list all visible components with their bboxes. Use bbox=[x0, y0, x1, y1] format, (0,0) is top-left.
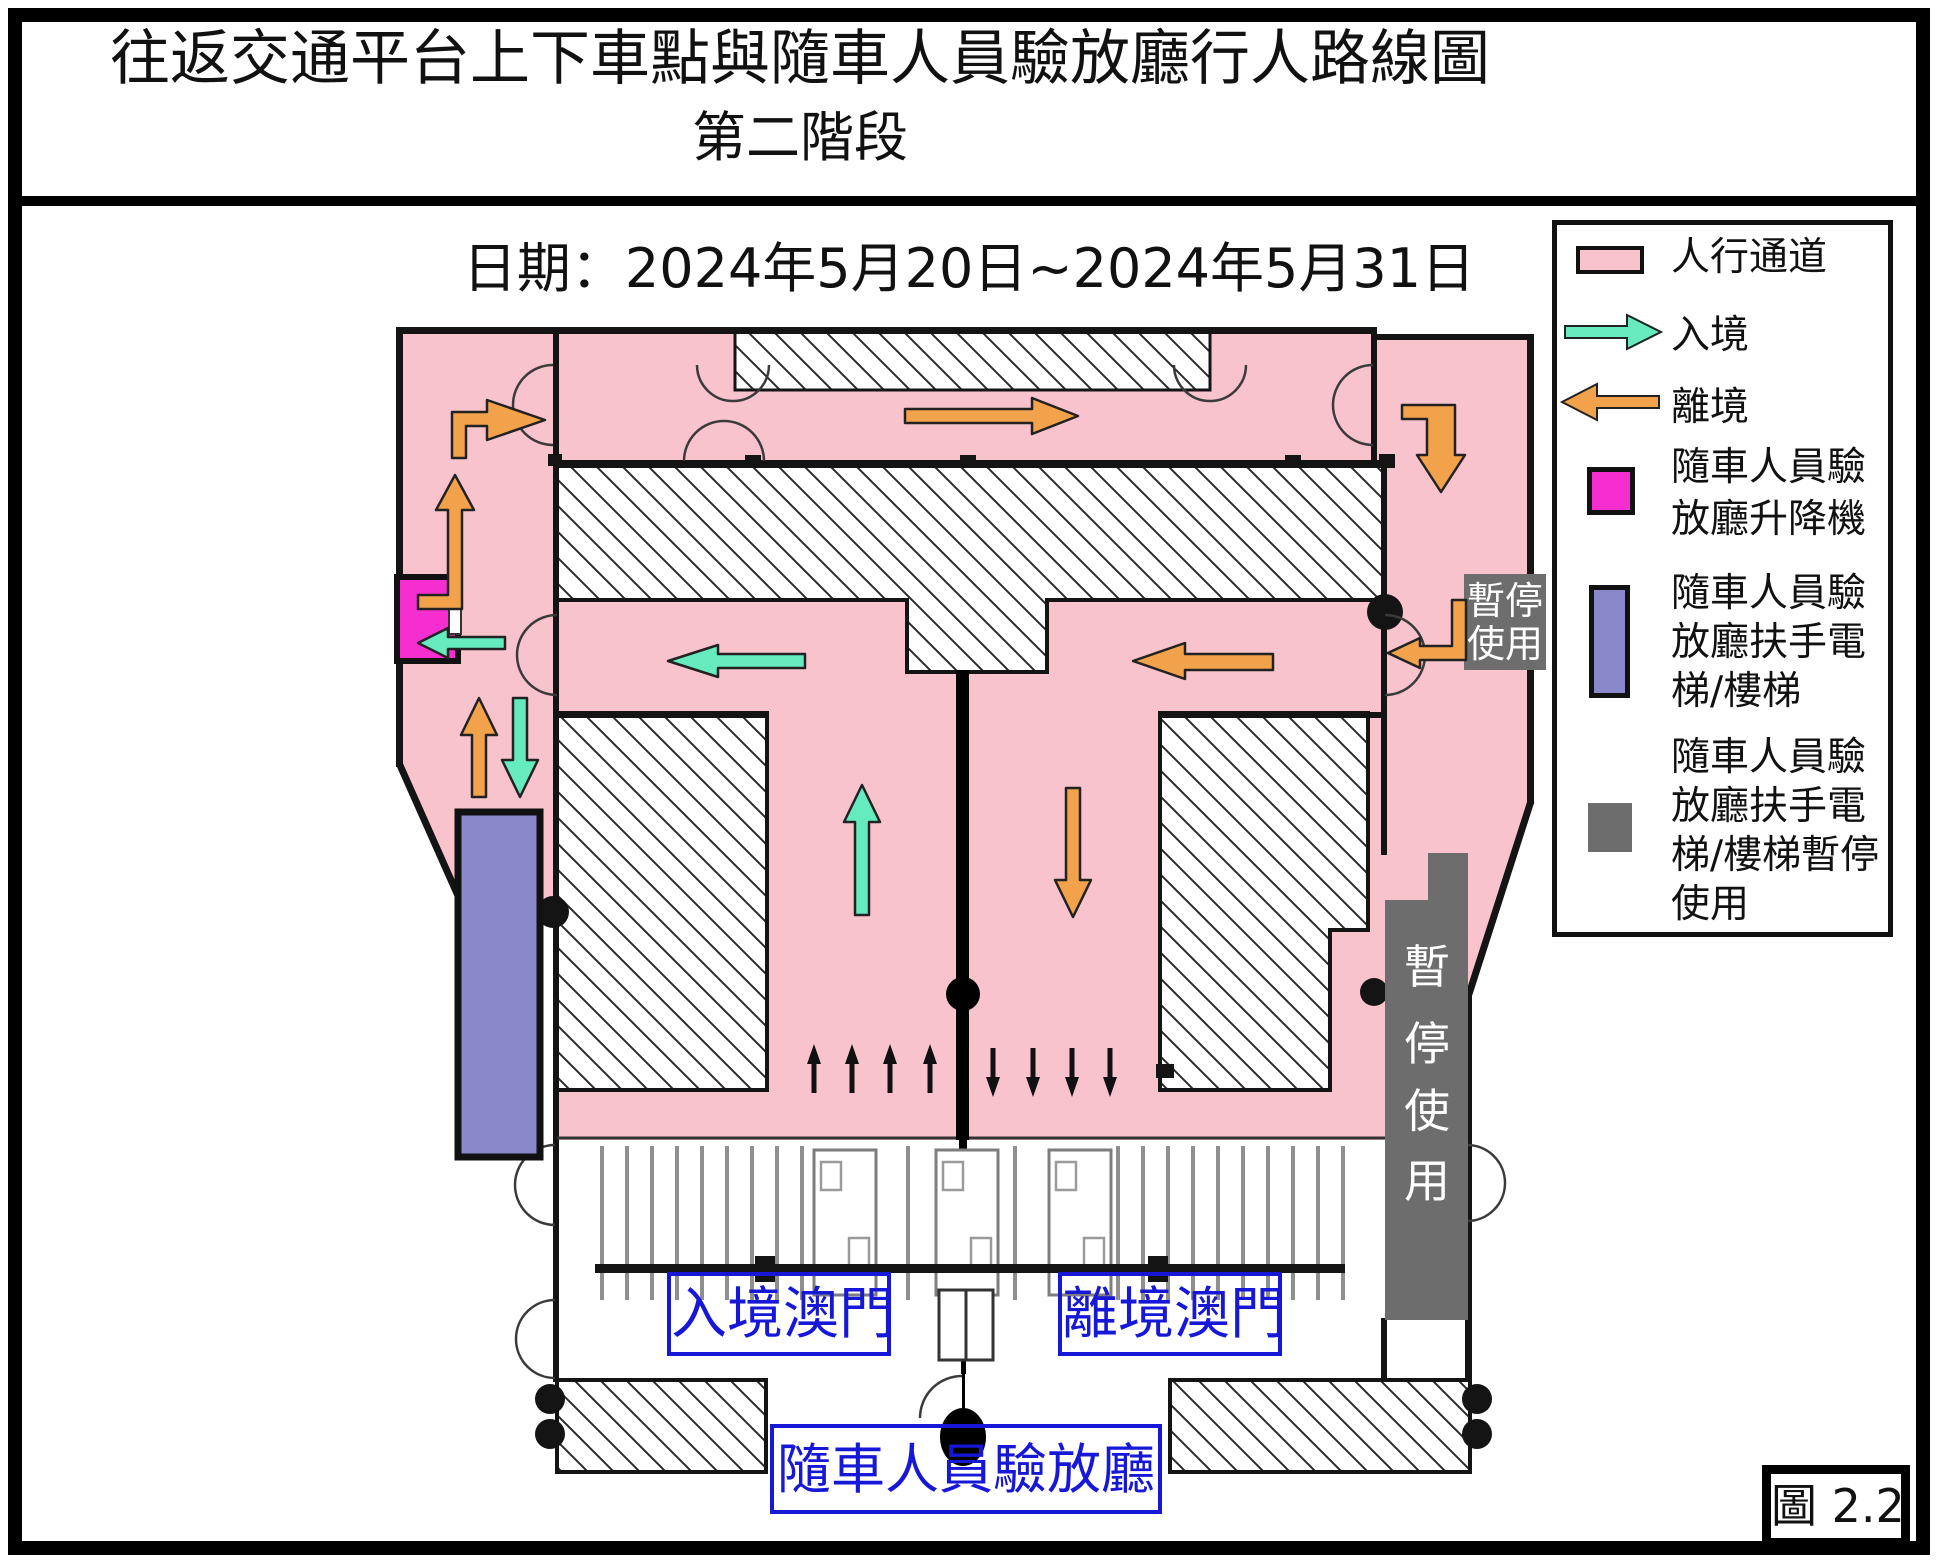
page-title: 往返交通平台上下車點與隨車人員驗放廳行人路線圖 第二階段 bbox=[0, 24, 1600, 168]
legend-label: 使用 bbox=[1671, 880, 1749, 929]
legend-label: 人行通道 bbox=[1671, 233, 1827, 282]
figure-page: 暫 停 使 用 暫停 使用 bbox=[0, 0, 1938, 1563]
legend-label: 入境 bbox=[1671, 311, 1749, 360]
legend-label: 隨車人員驗 bbox=[1671, 733, 1866, 782]
top-hatch-strip bbox=[735, 332, 1210, 390]
legend-label: 放廳升降機 bbox=[1671, 495, 1866, 544]
legend-label: 隨車人員驗 bbox=[1671, 569, 1866, 618]
bottom-right-hatch-block bbox=[1170, 1380, 1470, 1472]
legend-label: 梯/樓梯 bbox=[1671, 667, 1801, 716]
legend-label: 放廳扶手電 bbox=[1671, 618, 1866, 667]
title-line1: 往返交通平台上下車點與隨車人員驗放廳行人路線圖 bbox=[0, 24, 1600, 94]
svg-text:暫: 暫 bbox=[1404, 940, 1450, 994]
column-dot bbox=[946, 977, 980, 1011]
legend-label: 放廳扶手電 bbox=[1671, 782, 1866, 831]
svg-text:停: 停 bbox=[1404, 1017, 1450, 1071]
departure-macau-label: 離境澳門 bbox=[1058, 1272, 1282, 1356]
escalator-swatch bbox=[1589, 585, 1630, 698]
arrival-macau-label: 入境澳門 bbox=[667, 1272, 891, 1356]
svg-text:用: 用 bbox=[1404, 1154, 1450, 1208]
title-separator bbox=[22, 196, 1916, 206]
svg-text:使用: 使用 bbox=[1467, 622, 1543, 666]
legend-label: 梯/樓梯暫停 bbox=[1671, 831, 1879, 880]
pedestrian-walkway-swatch bbox=[1576, 246, 1644, 274]
title-line2: 第二階段 bbox=[0, 108, 1600, 168]
escalator-suspended-swatch bbox=[1588, 803, 1632, 852]
figure-number: 圖 2.2 bbox=[1762, 1465, 1910, 1547]
legend: 人行通道 入境 離境 隨車人員驗 放廳升降機 隨車人員驗 放廳扶手電 梯/樓梯 … bbox=[1552, 220, 1893, 937]
svg-text:暫停: 暫停 bbox=[1467, 579, 1543, 623]
bottom-left-hatch-block bbox=[557, 1380, 766, 1472]
legend-label: 離境 bbox=[1671, 383, 1749, 432]
lower-left-hatch-block bbox=[557, 713, 767, 1090]
elevator-swatch bbox=[1587, 467, 1635, 515]
suspended-use-label: 暫停 使用 bbox=[1464, 574, 1546, 670]
departure-arrow-icon bbox=[1559, 379, 1663, 425]
svg-text:使: 使 bbox=[1404, 1084, 1450, 1138]
legend-label: 隨車人員驗 bbox=[1671, 443, 1866, 492]
inspection-hall-escalator bbox=[458, 812, 540, 1157]
arrival-arrow-icon bbox=[1563, 311, 1667, 353]
inspection-hall-label: 隨車人員驗放廳 bbox=[770, 1424, 1162, 1514]
